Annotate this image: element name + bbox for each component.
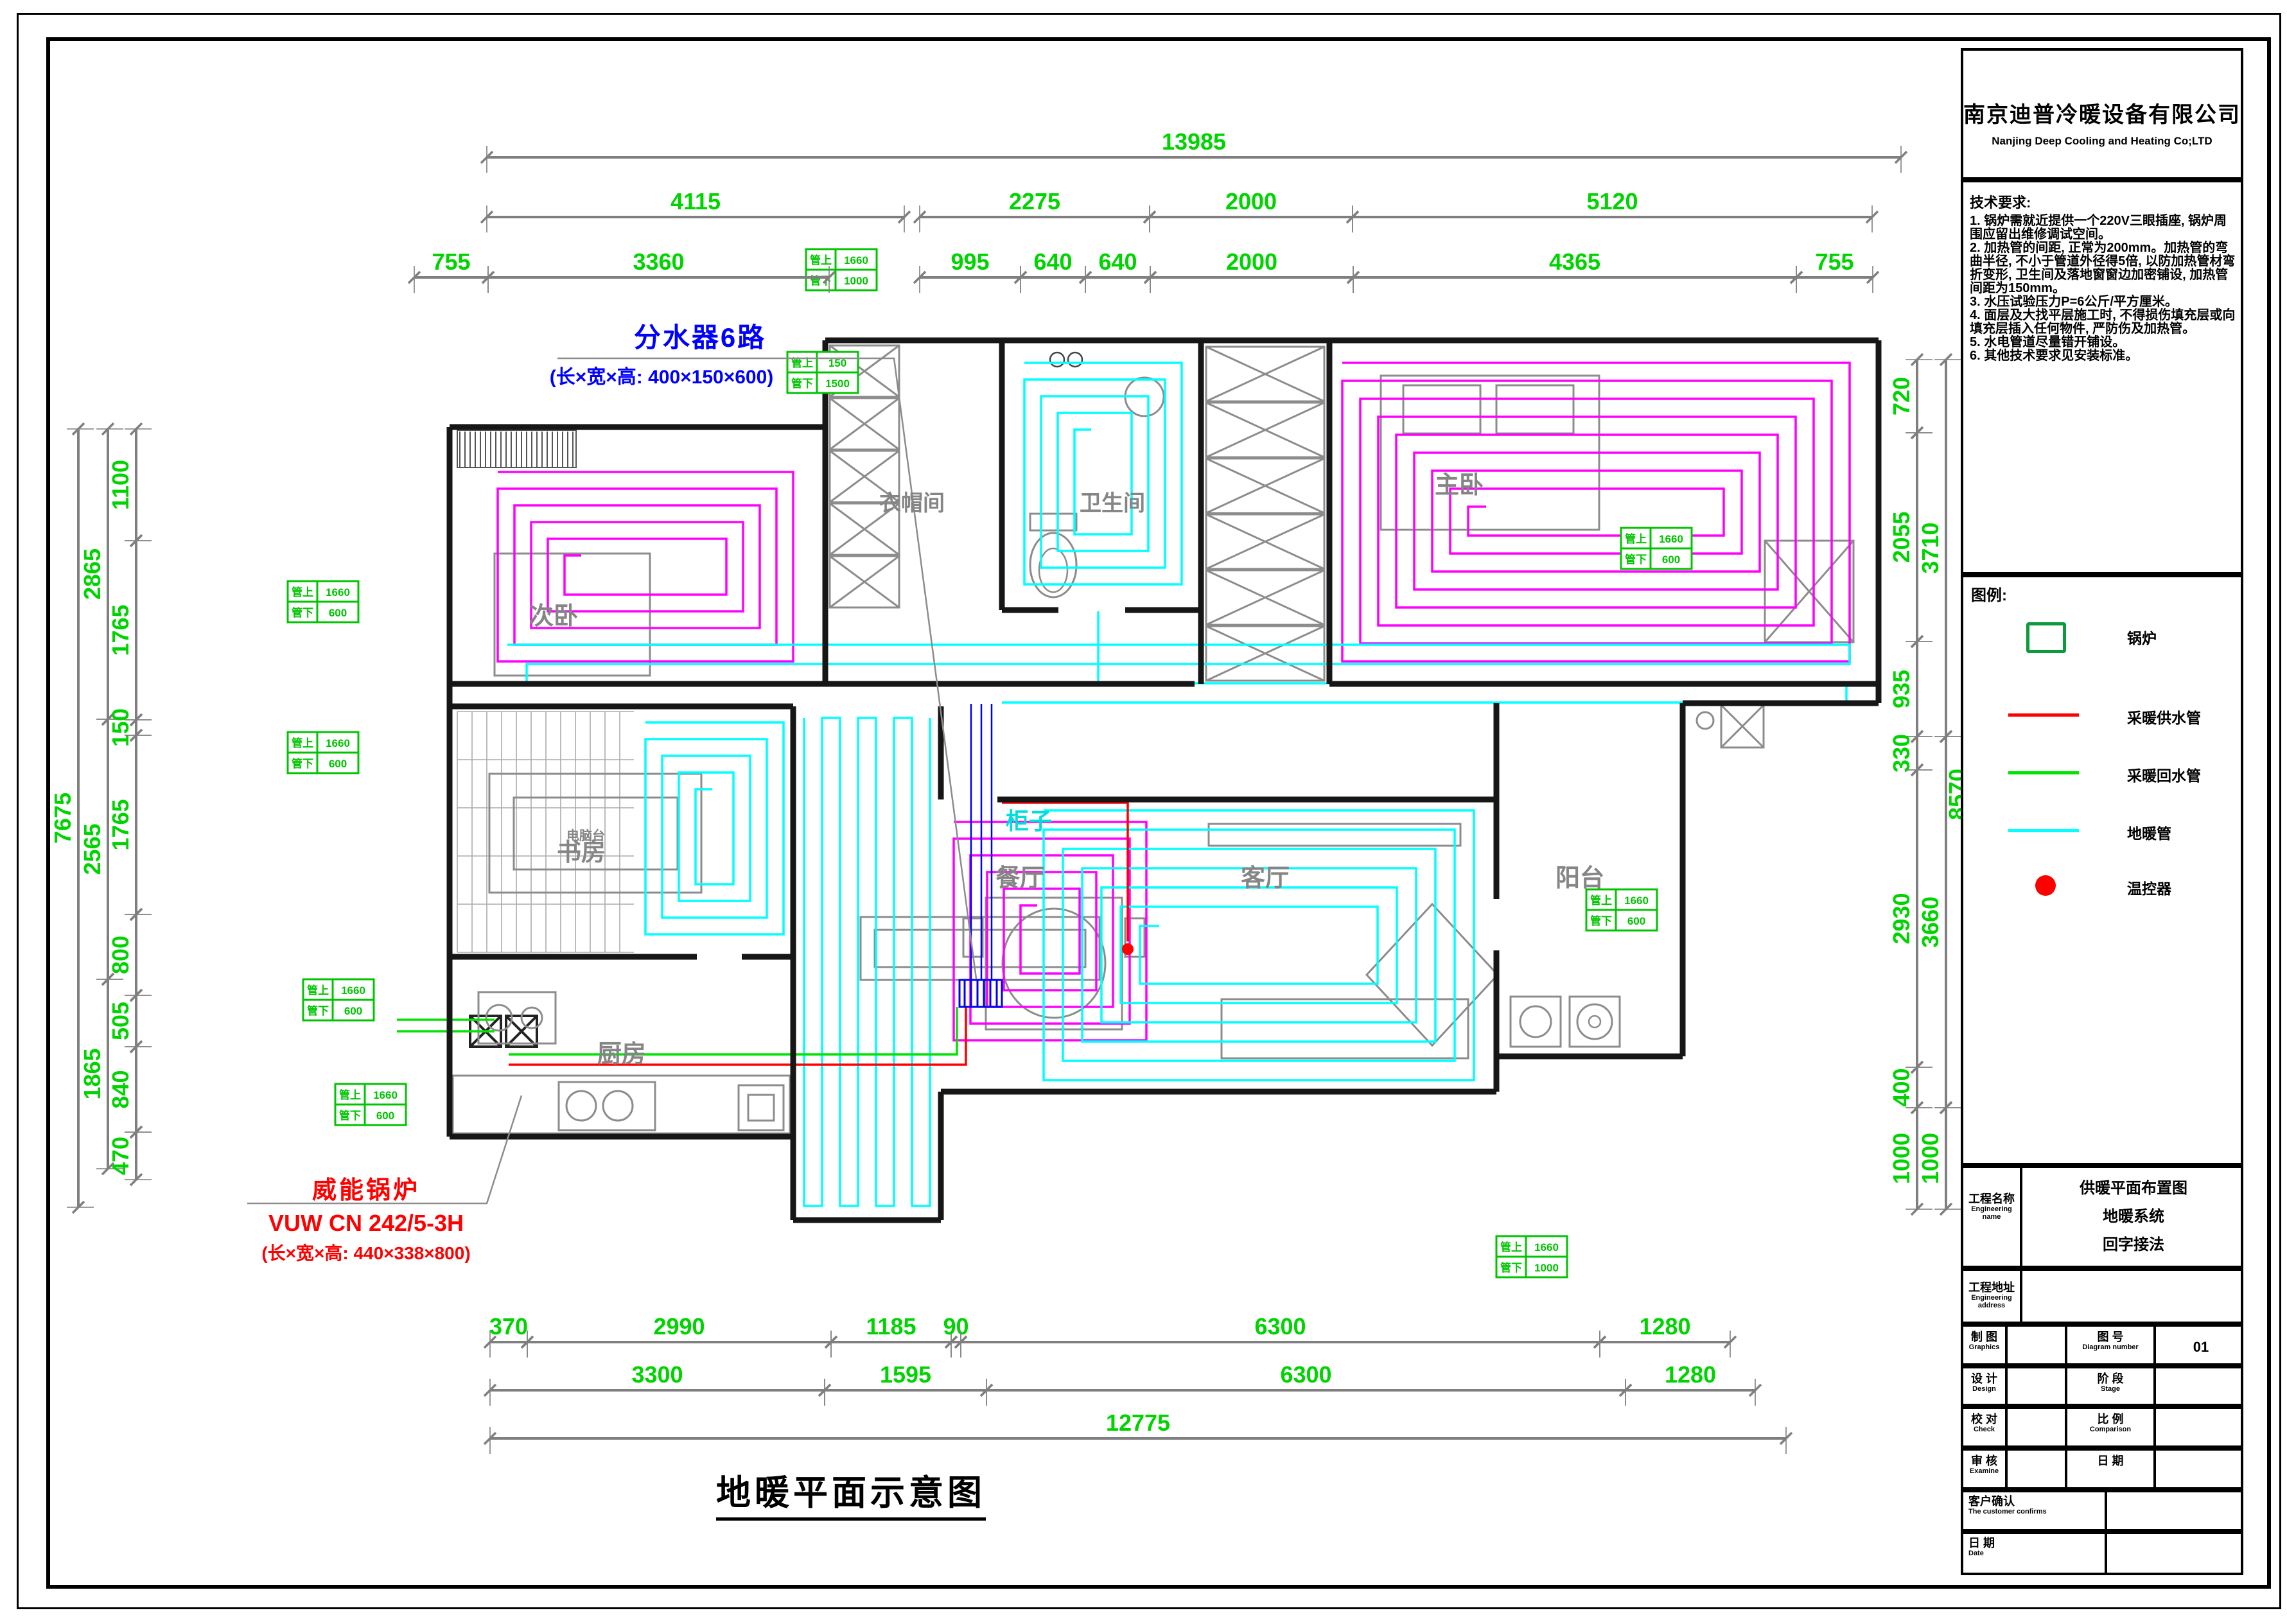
title-block-value bbox=[2008, 1327, 2067, 1363]
tech-requirements-heading: 技术要求: bbox=[1970, 191, 2236, 212]
title-block-label: 日 期 bbox=[1968, 1537, 2105, 1550]
dimension: 1100 bbox=[107, 423, 152, 546]
dimension-value: 1765 bbox=[107, 604, 134, 656]
boiler-note-title: 威能锅炉 bbox=[231, 1170, 501, 1205]
dimension-value: 800 bbox=[107, 936, 134, 974]
pipe-tag: 管上1660管下600 bbox=[1586, 889, 1657, 930]
manifold-note-title: 分水器6路 bbox=[578, 316, 822, 355]
dimension: 935 bbox=[1888, 636, 1932, 742]
dimension: 2000 bbox=[1144, 249, 1359, 293]
boiler-note-size: (长×宽×高: 440×338×800) bbox=[186, 1239, 546, 1265]
dimension: 5120 bbox=[1347, 188, 1878, 232]
dimension: 505 bbox=[107, 990, 152, 1052]
dimension-value: 2930 bbox=[1888, 893, 1915, 944]
dimension-value: 4365 bbox=[1549, 249, 1600, 275]
furniture bbox=[1511, 997, 1561, 1047]
manifold-note-size: (长×宽×高: 400×150×600) bbox=[411, 361, 912, 389]
pipe-tag-value: 1000 bbox=[1534, 1262, 1559, 1274]
room-label: 次卧 bbox=[529, 603, 578, 630]
room-label: 阳台 bbox=[1555, 865, 1604, 892]
dimension-value: 3660 bbox=[1917, 896, 1943, 948]
project-name-label-en: Engineering name bbox=[1963, 1205, 2020, 1221]
coil-second-bedroom bbox=[498, 472, 793, 661]
project-name-line: 地暖系统 bbox=[2025, 1203, 2242, 1231]
pipe-tag-value: 1660 bbox=[326, 586, 350, 598]
pipe-tag-value: 1660 bbox=[373, 1089, 398, 1101]
tech-requirement-item-3: 3. 水压试验压力P=6公斤/平方厘米。 bbox=[1970, 295, 2236, 309]
tech-requirement-item-6: 6. 其他技术要求见安装标准。 bbox=[1970, 349, 2236, 363]
tech-requirement-item-5: 5. 水电管道尽量错开铺设。 bbox=[1970, 336, 2236, 349]
room-label: 厨房 bbox=[597, 1041, 646, 1068]
pipe-tag: 管上1660管下600 bbox=[303, 979, 374, 1020]
pipe-tag: 管上1660管下1000 bbox=[806, 249, 877, 290]
project-name-line: 供暖平面布置图 bbox=[2025, 1174, 2242, 1203]
title-block-label: 审 核 bbox=[1963, 1454, 2005, 1467]
dimension: 3710 bbox=[1917, 354, 1961, 742]
title-block-label-en: Examine bbox=[1963, 1467, 2005, 1475]
title-block-value bbox=[2008, 1368, 2067, 1404]
tech-requirements-list: 1. 锅炉需就近提供一个220V三眼插座, 锅炉周围应留出维修调试空间。2. 加… bbox=[1970, 214, 2236, 363]
project-name-row: 工程名称 Engineering name 供暖平面布置图地暖系统回字接法 bbox=[1961, 1166, 2243, 1268]
title-block-value2 bbox=[2156, 1409, 2246, 1445]
dimension-value: 6300 bbox=[1254, 1313, 1306, 1340]
room-label: 卫生间 bbox=[1080, 491, 1145, 516]
dimension: 6300 bbox=[981, 1361, 1631, 1406]
dimension: 1765 bbox=[107, 535, 152, 726]
title-block-label-en: Diagram number bbox=[2067, 1343, 2153, 1351]
coil-hallway bbox=[804, 718, 930, 1206]
dimension: 1280 bbox=[1594, 1313, 1736, 1358]
dimension: 6300 bbox=[955, 1313, 1606, 1358]
dimension: 3300 bbox=[484, 1361, 830, 1406]
dimension: 3360 bbox=[482, 249, 835, 293]
room-label: 主卧 bbox=[1435, 472, 1484, 499]
dimension-value: 400 bbox=[1888, 1068, 1915, 1106]
dimension: 4115 bbox=[481, 188, 910, 232]
dimension-value: 3710 bbox=[1917, 522, 1943, 573]
cyan-line-icon bbox=[2008, 829, 2079, 832]
coil-study bbox=[645, 722, 784, 934]
coil-corridor bbox=[507, 645, 1850, 703]
dimension: 2000 bbox=[1144, 188, 1358, 232]
company-title-box: 南京迪普冷暖设备有限公司 Nanjing Deep Cooling and He… bbox=[1961, 48, 2243, 180]
dimension-value: 755 bbox=[1815, 249, 1853, 275]
title-block-label: 图 号 bbox=[2067, 1331, 2153, 1343]
project-address-label-cell: 工程地址 Engineering address bbox=[1963, 1271, 2022, 1322]
dimension-value: 1000 bbox=[1917, 1133, 1943, 1184]
coil-bathroom bbox=[1024, 363, 1182, 584]
dimension: 1280 bbox=[1620, 1361, 1761, 1406]
pipe-tag-value: 1660 bbox=[1659, 533, 1683, 545]
pipe-tag: 管上1660管下600 bbox=[288, 581, 358, 622]
coil-master-bedroom bbox=[1342, 363, 1850, 661]
cabinet-label: 柜子 bbox=[1006, 803, 1052, 836]
dimension-value: 505 bbox=[107, 1002, 134, 1040]
dimension-value: 3300 bbox=[631, 1361, 683, 1388]
dimension: 720 bbox=[1888, 354, 1932, 439]
pipe-tag: 管上1660管下1000 bbox=[1496, 1236, 1567, 1277]
title-block-label: 日 期 bbox=[2067, 1454, 2153, 1467]
title-block-label: 阶 段 bbox=[2067, 1372, 2153, 1385]
pipe-tag-label: 管上 bbox=[292, 737, 313, 749]
pipe-tag-label: 管下 bbox=[1500, 1261, 1522, 1274]
legend-item-label: 地暖管 bbox=[2127, 821, 2171, 843]
floor-plan-canvas: 管上1660管下1000管上150管下1500管上1660管下600管上1660… bbox=[0, 0, 2287, 1624]
tech-requirements-box: 技术要求: 1. 锅炉需就近提供一个220V三眼插座, 锅炉周围应留出维修调试空… bbox=[1961, 180, 2243, 575]
furniture bbox=[739, 1085, 784, 1130]
room-label: 电脑台 bbox=[566, 828, 605, 843]
title-block-value bbox=[2008, 1409, 2067, 1445]
dimension: 90 bbox=[943, 1313, 968, 1358]
dimension-value: 3360 bbox=[633, 249, 684, 275]
title-block-row-3: 校 对Check比 例Comparison bbox=[1961, 1406, 2243, 1448]
dimension-value: 2000 bbox=[1225, 188, 1277, 214]
furniture bbox=[1209, 824, 1460, 846]
project-name-line: 回字接法 bbox=[2025, 1231, 2242, 1259]
title-block-label-en: The customer confirms bbox=[1968, 1508, 2105, 1515]
dimension: 1595 bbox=[819, 1361, 992, 1406]
pipe-tag-value: 600 bbox=[344, 1005, 362, 1017]
pipe-tag-label: 管下 bbox=[292, 757, 313, 770]
return-pipe bbox=[509, 1007, 957, 1054]
dimension-value: 995 bbox=[951, 249, 989, 275]
boiler-symbol-icon bbox=[2026, 622, 2066, 653]
dimension-value: 935 bbox=[1888, 670, 1915, 708]
dimension: 370 bbox=[484, 1313, 533, 1358]
dimension: 150 bbox=[107, 708, 152, 747]
pipe-tag-label: 管下 bbox=[1590, 914, 1612, 927]
pipe-tag-value: 1660 bbox=[326, 737, 350, 749]
tech-requirement-item-1: 1. 锅炉需就近提供一个220V三眼插座, 锅炉周围应留出维修调试空间。 bbox=[1970, 214, 2236, 241]
furniture bbox=[875, 930, 1085, 967]
dimension: 640 bbox=[1015, 249, 1091, 293]
dimension-value: 1595 bbox=[880, 1361, 931, 1388]
title-block-row-2: 设 计Design阶 段Stage bbox=[1961, 1366, 2243, 1406]
dimension-value: 150 bbox=[107, 708, 134, 747]
dimension: 755 bbox=[408, 249, 494, 293]
pipe-tag-label: 管下 bbox=[1625, 553, 1647, 566]
dimension-value: 6300 bbox=[1280, 1361, 1331, 1388]
leader-line-layer bbox=[247, 358, 976, 1203]
pipe-tag-label: 管上 bbox=[307, 984, 329, 997]
dimension: 2990 bbox=[521, 1313, 837, 1358]
dimension-value: 2990 bbox=[653, 1313, 705, 1340]
pipe-tag-value: 1660 bbox=[1624, 895, 1649, 907]
supply-pipe bbox=[509, 1007, 966, 1065]
legend-item-label: 采暖供水管 bbox=[2127, 706, 2201, 728]
pipe-tag-value: 600 bbox=[329, 758, 347, 770]
title-block-value bbox=[2008, 1451, 2067, 1487]
tech-requirement-item-4: 4. 面层及大找平层施工时, 不得损伤填充层或向填充层插入任何物件, 严防伤及加… bbox=[1970, 309, 2236, 336]
project-name-label-cell: 工程名称 Engineering name bbox=[1963, 1168, 2022, 1266]
legend-item-red-dot: 温控器 bbox=[1989, 868, 2233, 906]
furniture bbox=[1403, 385, 1480, 433]
legend-box: 图例: 锅炉采暖供水管采暖回水管地暖管温控器 bbox=[1961, 575, 2243, 1166]
project-address-label-en: Engineering address bbox=[1963, 1294, 2020, 1309]
dimension-value: 2055 bbox=[1888, 511, 1915, 563]
dimension-value: 7675 bbox=[49, 792, 76, 844]
title-block-label: 设 计 bbox=[1963, 1372, 2005, 1385]
title-block-label: 比 例 bbox=[2067, 1413, 2153, 1426]
dimension: 800 bbox=[107, 909, 152, 1001]
room-label: 客厅 bbox=[1241, 864, 1290, 892]
furniture bbox=[559, 1082, 655, 1130]
dimension-value: 1185 bbox=[866, 1313, 916, 1340]
dimension: 2275 bbox=[914, 188, 1155, 232]
room-label: 书房 bbox=[557, 839, 606, 866]
dimension-value: 720 bbox=[1888, 377, 1915, 415]
title-block-row-1: 制 图Graphics图 号Diagram number01 bbox=[1961, 1324, 2243, 1366]
thermostat-dot-icon bbox=[2035, 875, 2056, 896]
dimension-value: 2865 bbox=[79, 548, 105, 600]
title-block-date-value bbox=[2107, 1534, 2246, 1573]
pipe-tag-label: 管上 bbox=[810, 254, 832, 266]
plan-main-title: 地暖平面示意图 bbox=[716, 1474, 986, 1521]
pipe-tag-value: 1660 bbox=[844, 254, 868, 266]
project-name-label: 工程名称 bbox=[1963, 1192, 2020, 1205]
dimension-value: 1280 bbox=[1639, 1313, 1690, 1340]
dimension: 12775 bbox=[484, 1410, 1792, 1454]
furniture bbox=[1222, 999, 1468, 1058]
title-block-label: 制 图 bbox=[1963, 1331, 2005, 1343]
room-label: 衣帽间 bbox=[879, 491, 945, 516]
title-block-value2 bbox=[2156, 1368, 2246, 1404]
tech-requirement-item-2: 2. 加热管的间距, 正常为200mm。加热管的弯曲半径, 不小于管道外径得5倍… bbox=[1970, 241, 2236, 295]
dimension: 840 bbox=[107, 1041, 152, 1138]
dimension: 470 bbox=[107, 1126, 152, 1185]
dimension: 1765 bbox=[107, 729, 152, 920]
dimension: 1185 bbox=[825, 1313, 957, 1358]
dimension-value: 755 bbox=[432, 249, 470, 275]
title-block-label-en: Graphics bbox=[1963, 1343, 2005, 1351]
title-block-value2: 01 bbox=[2156, 1327, 2246, 1363]
dimension-value: 1865 bbox=[79, 1048, 105, 1099]
dimension-value: 2275 bbox=[1009, 188, 1060, 214]
title-block-label-en: Comparison bbox=[2067, 1426, 2153, 1433]
dimension: 640 bbox=[1080, 249, 1156, 293]
green-line-icon bbox=[2008, 771, 2079, 774]
furniture bbox=[748, 1095, 774, 1121]
pipe-tag-label: 管上 bbox=[1500, 1241, 1522, 1253]
pipe-tag-value: 600 bbox=[1662, 554, 1680, 566]
legend-item-label: 温控器 bbox=[2127, 877, 2171, 898]
dimension: 400 bbox=[1888, 1061, 1932, 1113]
legend-item-boiler-rect: 锅炉 bbox=[1989, 617, 2233, 656]
dimension: 995 bbox=[914, 249, 1026, 293]
dimension: 4365 bbox=[1347, 249, 1802, 293]
dimension-value: 640 bbox=[1098, 249, 1137, 275]
pipe-tag-label: 管上 bbox=[292, 586, 313, 598]
title-block-label: 校 对 bbox=[1963, 1413, 2005, 1426]
dimension-value: 1100 bbox=[107, 460, 134, 510]
project-name-value: 供暖平面布置图地暖系统回字接法 bbox=[2025, 1174, 2242, 1259]
legend-item-label: 采暖回水管 bbox=[2127, 764, 2201, 785]
pipe-tag-label: 管上 bbox=[1590, 894, 1612, 907]
boiler-note-model: VUW CN 242/5-3H bbox=[212, 1210, 520, 1237]
dimension: 1000 bbox=[1917, 1102, 1961, 1215]
title-block-row-4: 审 核Examine日 期 bbox=[1961, 1448, 2243, 1490]
title-block-label: 客户确认 bbox=[1968, 1495, 2105, 1508]
dimension: 755 bbox=[1791, 249, 1879, 293]
dimension-value: 330 bbox=[1888, 734, 1915, 773]
dimension-value: 370 bbox=[489, 1313, 528, 1340]
dimension-value: 840 bbox=[107, 1070, 134, 1108]
title-block-confirm-row: 客户确认The customer confirms bbox=[1961, 1490, 2243, 1532]
title-block-label-en: Design bbox=[1963, 1385, 2005, 1393]
legend-heading: 图例: bbox=[1971, 582, 2007, 605]
dimension-value: 1280 bbox=[1665, 1361, 1716, 1388]
furniture bbox=[1030, 514, 1076, 530]
furniture bbox=[1496, 385, 1573, 433]
title-block-confirm-value bbox=[2107, 1492, 2246, 1529]
pipe-tag-label: 管下 bbox=[292, 606, 313, 619]
pipe-tag-value: 1000 bbox=[844, 275, 868, 287]
pipe-tag: 管上1660管下600 bbox=[1621, 528, 1692, 569]
dimension-value: 13985 bbox=[1162, 128, 1226, 155]
dimension-value: 5120 bbox=[1586, 188, 1638, 214]
thermostat-dot bbox=[1122, 943, 1134, 955]
dimension: 330 bbox=[1888, 731, 1932, 776]
title-block-label-en: Check bbox=[1963, 1426, 2005, 1433]
dimension-value: 2000 bbox=[1226, 249, 1277, 275]
pipe-tag-value: 600 bbox=[1627, 915, 1645, 927]
hatch-layer bbox=[457, 430, 634, 952]
pipe-tag-label: 管下 bbox=[339, 1109, 361, 1122]
dimension-value: 1765 bbox=[107, 799, 134, 850]
pipe-tag: 管上1660管下600 bbox=[288, 732, 358, 773]
title-block-label-en: Stage bbox=[2067, 1385, 2153, 1393]
title-block-value2 bbox=[2156, 1451, 2246, 1487]
dimension-value: 1000 bbox=[1888, 1133, 1915, 1184]
legend-item-label: 锅炉 bbox=[2127, 626, 2157, 648]
title-block-label-en: Date bbox=[1968, 1550, 2105, 1557]
pipe-tag-value: 600 bbox=[376, 1110, 394, 1122]
dimension-value: 470 bbox=[107, 1137, 134, 1175]
legend-item-red-line: 采暖供水管 bbox=[1989, 697, 2233, 735]
room-label: 餐厅 bbox=[995, 865, 1044, 892]
pipe-tag-value: 600 bbox=[329, 607, 347, 619]
dimension-value: 90 bbox=[943, 1313, 968, 1340]
dimension-value: 4115 bbox=[670, 188, 721, 214]
project-address-row: 工程地址 Engineering address bbox=[1961, 1268, 2243, 1324]
company-name-cn: 南京迪普冷暖设备有限公司 bbox=[1963, 97, 2241, 128]
dimension-value: 2565 bbox=[79, 823, 105, 875]
pipe-tag-label: 管上 bbox=[1625, 532, 1647, 545]
legend-item-cyan-line: 地暖管 bbox=[1989, 812, 2233, 851]
dimension: 13985 bbox=[481, 128, 1907, 173]
pipe-tag-value: 1660 bbox=[1534, 1241, 1559, 1253]
project-address-label: 工程地址 bbox=[1963, 1281, 2020, 1294]
dimension-value: 12775 bbox=[1106, 1410, 1170, 1436]
title-block-date-row: 日 期Date bbox=[1961, 1532, 2243, 1575]
company-name-en: Nanjing Deep Cooling and Heating Co;LTD bbox=[1963, 135, 2241, 148]
legend-item-green-line: 采暖回水管 bbox=[1989, 755, 2233, 793]
pipe-tag-value: 1660 bbox=[341, 984, 365, 997]
pipe-tag-label: 管下 bbox=[307, 1004, 329, 1017]
pipe-tag-label: 管上 bbox=[339, 1088, 361, 1101]
red-line-icon bbox=[2008, 713, 2079, 717]
dimension-value: 640 bbox=[1033, 249, 1072, 275]
manifold-symbol bbox=[959, 980, 1002, 1007]
drawing-sheet: 管上1660管下1000管上150管下1500管上1660管下600管上1660… bbox=[0, 0, 2287, 1624]
pipe-tag: 管上1660管下600 bbox=[335, 1084, 406, 1125]
